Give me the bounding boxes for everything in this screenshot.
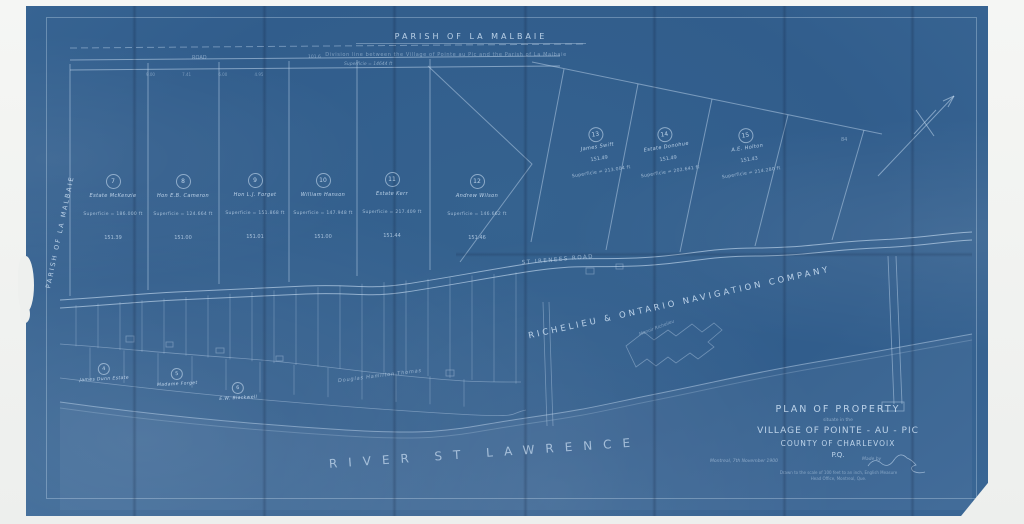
parish-top-label: PARISH OF LA MALBAIE xyxy=(356,32,586,44)
title-line-3: VILLAGE OF POINTE - AU - PIC xyxy=(708,426,968,436)
lot-owner: A.E. Holton xyxy=(731,143,764,154)
lot-number: 14 xyxy=(656,126,673,143)
scale-note: Drawn to the scale of 100 feet to an inc… xyxy=(726,470,951,475)
fold-crease xyxy=(262,6,267,516)
made-by-label: Made by xyxy=(862,457,881,462)
lot-superficie: Superficie = 217.409 ft xyxy=(362,210,421,215)
title-date: Montreal, 7th November 1900 xyxy=(710,459,778,464)
lot-owner: Andrew Wilson xyxy=(456,193,498,199)
village-parcel-lines xyxy=(60,264,623,426)
title-line-1: PLAN OF PROPERTY xyxy=(708,404,968,415)
title-line-2: situate in the xyxy=(708,418,968,423)
lot-dimension: 151.39 xyxy=(104,235,122,241)
lot-number: 7 xyxy=(106,174,121,189)
top-road-label: ROAD xyxy=(192,55,207,61)
lot-dimension: 151.49 xyxy=(590,155,608,164)
division-note: Division line between the Village of Poi… xyxy=(276,52,616,58)
title-line-5: P.Q. xyxy=(708,451,968,459)
office-note: Head Office, Montreal, Que. xyxy=(726,476,951,481)
lot-number: 10 xyxy=(316,173,331,188)
lot-number: 4 xyxy=(98,363,111,376)
paper-tear xyxy=(18,256,34,312)
blueprint-scan: PARISH OF LA MALBAIE Division line betwe… xyxy=(0,0,1024,524)
lot-dimension: 151.00 xyxy=(314,234,332,240)
lot-number: 11 xyxy=(385,172,400,187)
lot-dimension: 151.00 xyxy=(174,235,192,241)
hotel-building-outline xyxy=(626,323,722,367)
title-line-4: COUNTY OF CHARLEVOIX xyxy=(708,439,968,448)
lot-number: 8 xyxy=(176,174,191,189)
paper-tear xyxy=(20,305,30,323)
lot-number: 5 xyxy=(171,368,184,381)
lot-number: 9 xyxy=(248,173,263,188)
lot-number: 12 xyxy=(470,174,485,189)
lot-owner: Estate Donohue xyxy=(643,141,689,154)
fold-crease xyxy=(132,6,137,516)
top-road-number: 101.6 xyxy=(308,55,321,60)
area-number-label: 84 xyxy=(841,137,847,143)
blueprint-paper: PARISH OF LA MALBAIE Division line betwe… xyxy=(26,6,988,516)
lot-group: 12Andrew WilsonSuperficie = 146.662 ft15… xyxy=(422,174,532,241)
lot-superficie: Superficie = 146.662 ft xyxy=(447,212,506,217)
lot-owner: Estate Kerr xyxy=(376,191,408,197)
fold-crease xyxy=(392,6,397,516)
fold-crease-horizontal xyxy=(456,252,972,257)
north-arrow-icon xyxy=(878,96,954,176)
lot-number: 15 xyxy=(737,127,754,144)
top-superficie-label: Superficie = 14644 ft xyxy=(344,62,392,67)
lot-dimension: 151.01 xyxy=(246,234,264,240)
lot-dimension: 151.43 xyxy=(740,156,758,165)
lot-number: 6 xyxy=(232,382,245,395)
division-line xyxy=(70,44,586,48)
lot-dimension: 151.49 xyxy=(659,155,677,164)
top-ticks-row: 9.00 7.41 6.00 4.95 xyxy=(146,72,263,77)
lot-number: 13 xyxy=(587,126,604,143)
lot-dimension: 151.46 xyxy=(468,235,486,241)
lot-dimension: 151.44 xyxy=(383,233,401,239)
